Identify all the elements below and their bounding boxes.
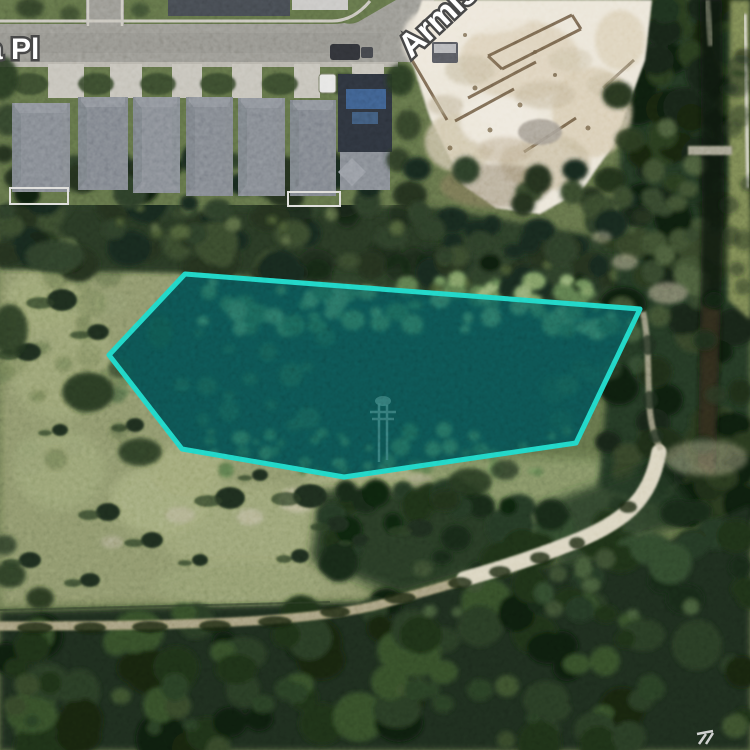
svg-text:a Pl: a Pl [0,33,39,66]
